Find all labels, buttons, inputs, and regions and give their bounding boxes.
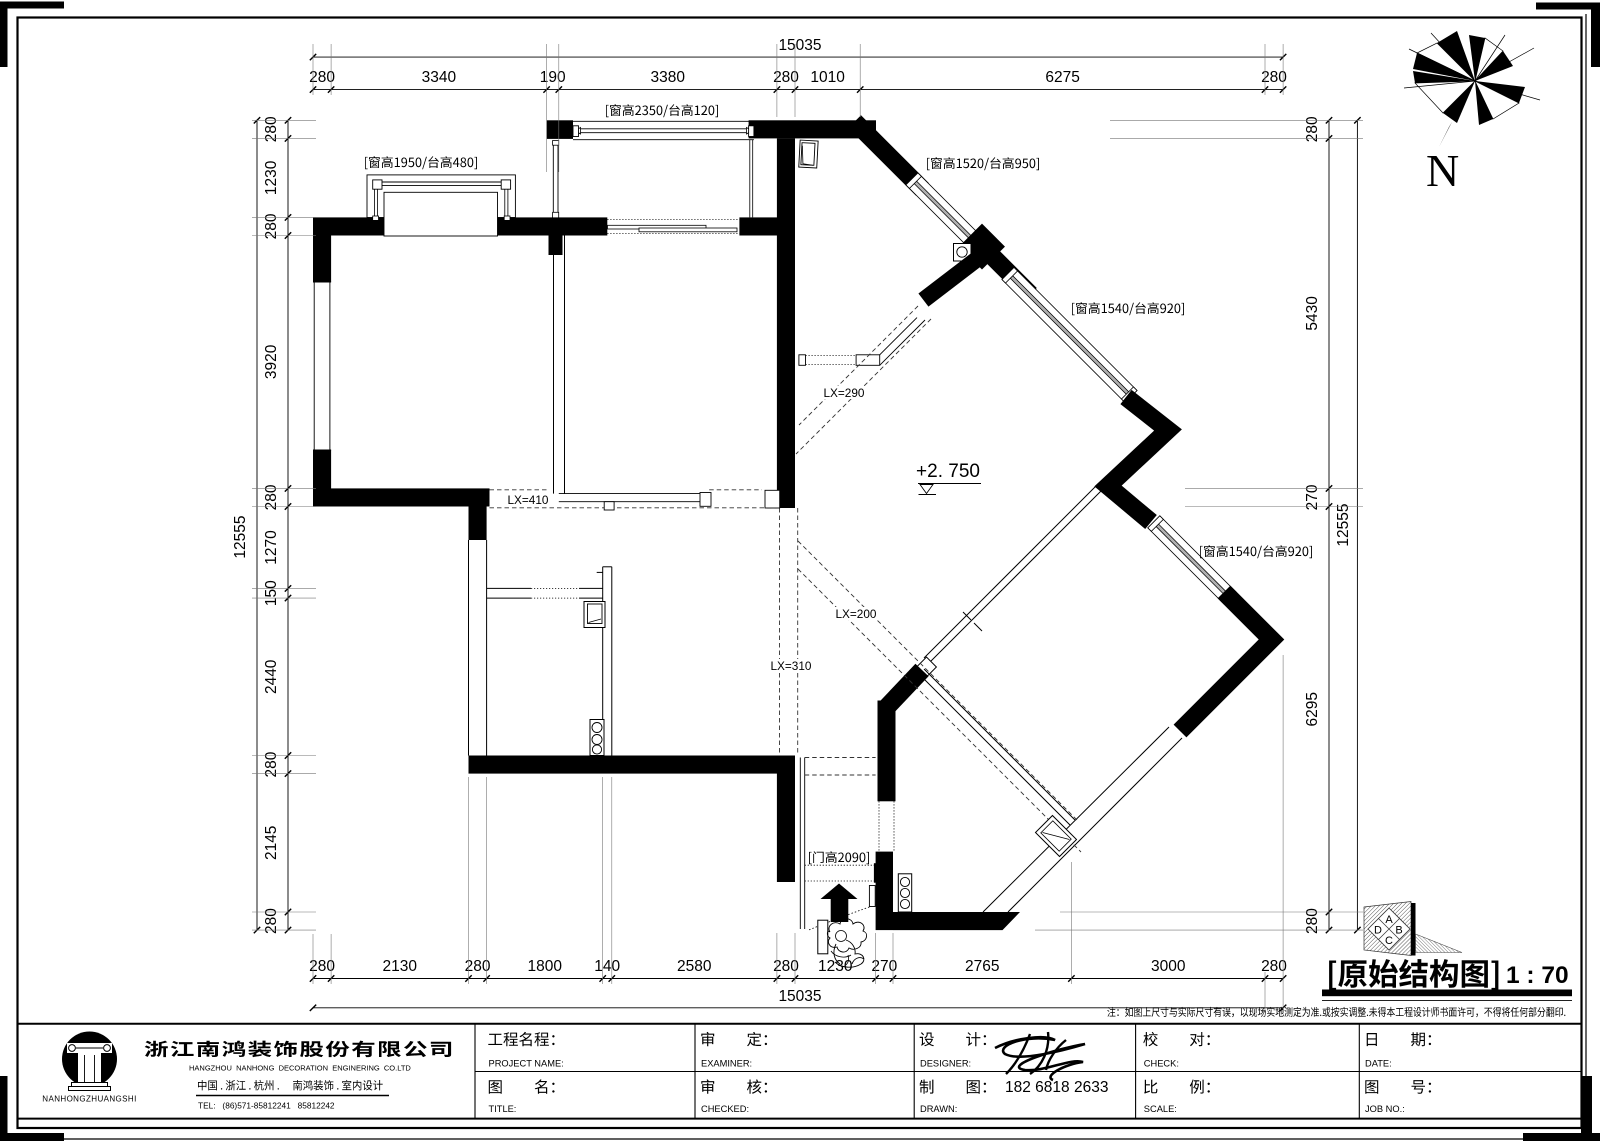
svg-text:3920: 3920 [263,344,280,379]
svg-text:3000: 3000 [1151,958,1186,975]
svg-text:LX=290: LX=290 [823,386,864,400]
svg-text:140: 140 [594,958,620,975]
svg-text:1270: 1270 [263,530,280,565]
svg-text:15035: 15035 [778,37,821,54]
svg-text:SCALE:: SCALE: [1144,1104,1177,1114]
svg-text:B: B [1395,925,1402,937]
svg-text:1230: 1230 [263,160,280,195]
svg-text:1800: 1800 [527,958,562,975]
svg-text:270: 270 [871,958,897,975]
svg-text:N: N [1426,145,1459,196]
svg-text:5430: 5430 [1304,296,1321,331]
svg-text:HANGZHOU NANHONG DECORATION: HANGZHOU NANHONG DECORATION ENGINERING C… [189,1064,411,1073]
svg-text:3340: 3340 [422,69,457,86]
svg-text:1010: 1010 [810,69,845,86]
svg-text:JOB NO.:: JOB NO.: [1365,1104,1405,1114]
svg-text:DRAWN:: DRAWN: [920,1104,957,1114]
svg-text:LX=200: LX=200 [835,607,876,621]
svg-text:CHECKED:: CHECKED: [701,1104,749,1114]
svg-text:2580: 2580 [677,958,712,975]
svg-text:1230: 1230 [818,958,853,975]
svg-text:182 6818 2633: 182 6818 2633 [1005,1079,1108,1096]
svg-text:2765: 2765 [965,958,999,975]
svg-text:12555: 12555 [1335,503,1352,546]
svg-text:LX=410: LX=410 [507,493,548,507]
svg-text:6295: 6295 [1304,692,1321,726]
svg-text:NANHONGZHUANGSHI: NANHONGZHUANGSHI [42,1095,136,1104]
svg-text:TEL: (86)571-85812241 8581: TEL: (86)571-85812241 85812242 [198,1101,335,1111]
svg-text:15035: 15035 [778,988,821,1005]
svg-text:6275: 6275 [1045,69,1079,86]
svg-text:DATE:: DATE: [1365,1059,1392,1069]
svg-text:1 : 70: 1 : 70 [1506,962,1569,989]
svg-text:TITLE:: TITLE: [489,1104,517,1114]
svg-text:190: 190 [540,69,566,86]
svg-text:150: 150 [263,580,280,606]
svg-text:2440: 2440 [263,659,280,694]
svg-text:DESIGNER:: DESIGNER: [920,1059,971,1069]
svg-text:+2. 750: +2. 750 [916,461,980,482]
svg-text:C: C [1385,935,1393,947]
svg-text:A: A [1385,914,1393,926]
svg-text:3380: 3380 [651,69,686,86]
svg-text:PROJECT NAME:: PROJECT NAME: [489,1059,564,1069]
svg-text:EXAMINER:: EXAMINER: [701,1059,752,1069]
svg-text:LX=310: LX=310 [770,659,811,673]
svg-text:12555: 12555 [232,515,249,558]
svg-text:D: D [1374,925,1382,937]
svg-text:2145: 2145 [263,826,280,860]
svg-text:CHECK:: CHECK: [1144,1059,1179,1069]
svg-text:2130: 2130 [383,958,418,975]
